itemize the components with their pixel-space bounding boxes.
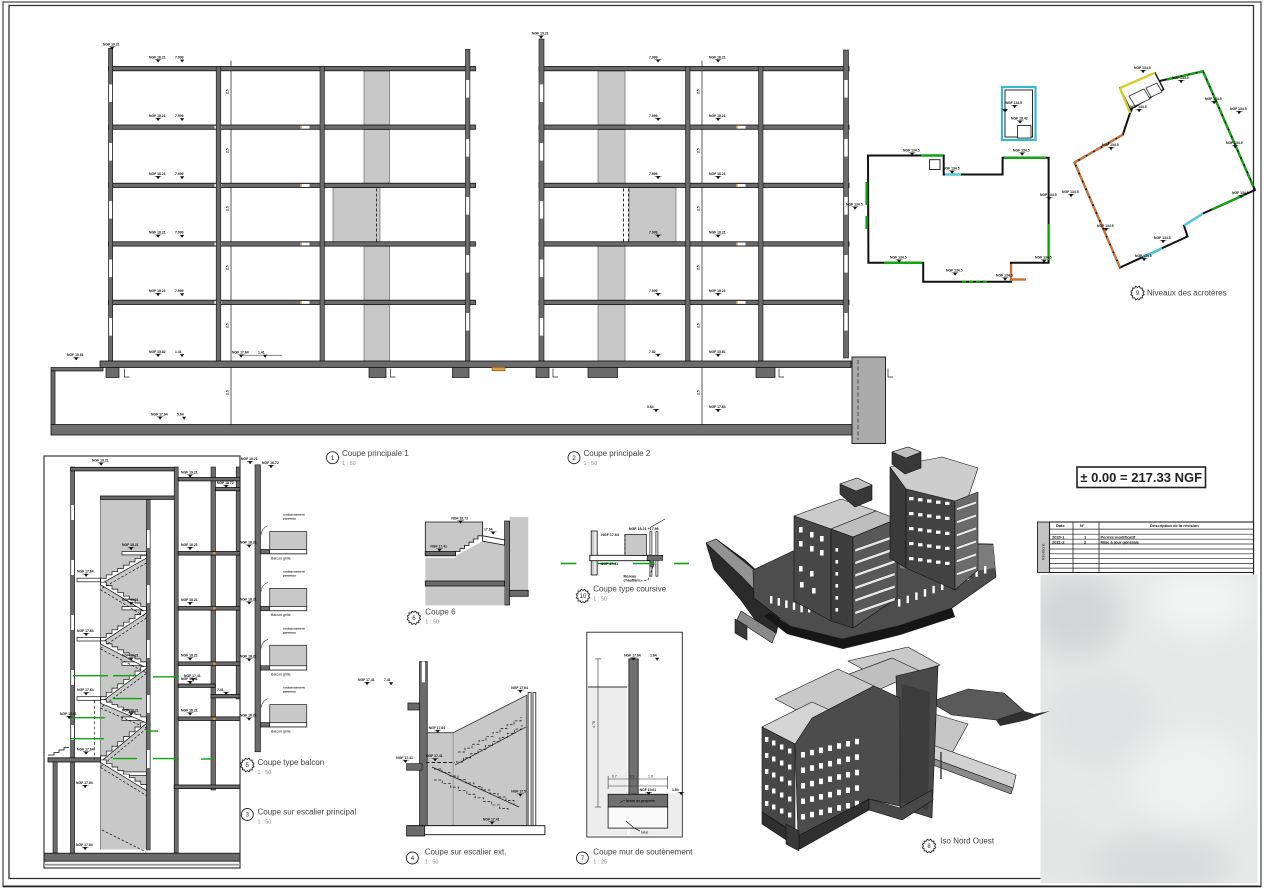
svg-text:NGF 17.64: NGF 17.64 <box>151 413 168 417</box>
svg-text:2.5: 2.5 <box>697 206 701 211</box>
svg-text:NGF 17.41: NGF 17.41 <box>601 562 619 566</box>
svg-text:7.999: 7.999 <box>649 289 658 293</box>
svg-text:NGF 18.21: NGF 18.21 <box>149 231 166 235</box>
svg-text:NGF 15.61: NGF 15.61 <box>709 350 726 354</box>
svg-text:Balcon grille: Balcon grille <box>271 729 291 733</box>
svg-text:2.5: 2.5 <box>697 323 701 328</box>
svg-text:1 : 50: 1 : 50 <box>258 770 272 776</box>
svg-text:7.999: 7.999 <box>649 114 658 118</box>
svg-text:NGF 17.64: NGF 17.64 <box>429 726 446 730</box>
svg-text:10: 10 <box>580 594 587 600</box>
svg-text:NGF 17.64: NGF 17.64 <box>624 654 641 658</box>
svg-text:NGF 19.21: NGF 19.21 <box>532 32 549 36</box>
svg-text:NGF 134.5: NGF 134.5 <box>1006 101 1023 105</box>
svg-text:Coupe sur escalier ext.: Coupe sur escalier ext. <box>425 848 507 857</box>
svg-text:1 : 50: 1 : 50 <box>342 461 356 467</box>
svg-text:NGF 18.21: NGF 18.21 <box>181 708 198 712</box>
svg-text:2.5: 2.5 <box>226 265 230 270</box>
svg-text:7.999: 7.999 <box>175 172 184 176</box>
svg-text:Date: Date <box>1056 523 1065 528</box>
svg-text:Balcon grille: Balcon grille <box>271 613 291 617</box>
svg-text:NGF 17.64: NGF 17.64 <box>76 843 93 847</box>
svg-text:NGF 134.5: NGF 134.5 <box>1102 143 1119 147</box>
svg-text:7.999: 7.999 <box>649 55 658 59</box>
svg-text:NGF 15.61: NGF 15.61 <box>67 353 84 357</box>
svg-text:NGF 17.64: NGF 17.64 <box>77 629 94 633</box>
svg-text:NGF 18.72: NGF 18.72 <box>217 481 234 485</box>
svg-text:NGF 134.5: NGF 134.5 <box>1172 76 1189 80</box>
svg-text:NGF 134.5: NGF 134.5 <box>943 167 960 171</box>
svg-text:NGF 18.21: NGF 18.21 <box>240 714 257 718</box>
svg-text:2.5: 2.5 <box>697 89 701 94</box>
svg-text:panneau: panneau <box>283 630 296 634</box>
svg-text:7.999: 7.999 <box>175 289 184 293</box>
svg-text:panneau: panneau <box>283 690 296 694</box>
svg-text:NGF 134.5: NGF 134.5 <box>1040 193 1057 197</box>
svg-text:NGF 19.21: NGF 19.21 <box>241 457 258 461</box>
svg-text:7.999: 7.999 <box>175 114 184 118</box>
svg-text:NGF 134.5: NGF 134.5 <box>1230 107 1247 111</box>
svg-text:Coupe 6: Coupe 6 <box>425 608 456 617</box>
svg-text:Révisions: Révisions <box>1042 543 1046 560</box>
svg-text:2021-2: 2021-2 <box>1052 539 1065 544</box>
svg-text:1.41: 1.41 <box>258 351 265 355</box>
svg-text:Coupe type coursive: Coupe type coursive <box>593 585 666 594</box>
svg-text:NGF 18.21: NGF 18.21 <box>709 289 726 293</box>
svg-text:NGF 134.5: NGF 134.5 <box>846 203 863 207</box>
svg-text:0.7: 0.7 <box>612 775 617 779</box>
svg-text:Coupe type balcon: Coupe type balcon <box>258 758 325 767</box>
svg-text:NGF 18.21: NGF 18.21 <box>149 114 166 118</box>
svg-text:NGF 134.5: NGF 134.5 <box>1205 97 1222 101</box>
svg-text:Description de la révision: Description de la révision <box>1150 523 1199 528</box>
svg-text:NGF 18.21: NGF 18.21 <box>240 597 257 601</box>
svg-text:NGF 17.64: NGF 17.64 <box>77 570 94 574</box>
svg-text:Niveaux des acrotères: Niveaux des acrotères <box>1147 289 1227 298</box>
svg-text:Coupe principale 2: Coupe principale 2 <box>584 449 651 458</box>
svg-text:NGF 134.5: NGF 134.5 <box>1226 141 1243 145</box>
svg-text:NGF 18.72: NGF 18.72 <box>262 461 279 465</box>
svg-text:1 : 50: 1 : 50 <box>593 597 607 603</box>
svg-text:1 : 50: 1 : 50 <box>584 461 598 467</box>
svg-text:NGF 17.5: NGF 17.5 <box>511 790 526 794</box>
svg-text:NGF 18.21: NGF 18.21 <box>709 114 726 118</box>
svg-text:NGF 18.21: NGF 18.21 <box>181 598 198 602</box>
svg-text:NGF 134.5: NGF 134.5 <box>1062 190 1079 194</box>
svg-text:7.41: 7.41 <box>217 688 224 692</box>
svg-text:NGF 17.64: NGF 17.64 <box>601 533 619 537</box>
svg-text:béton de propreté: béton de propreté <box>626 799 655 803</box>
svg-text:1 : 50: 1 : 50 <box>258 820 272 826</box>
svg-text:NGF 134.5: NGF 134.5 <box>1232 191 1249 195</box>
svg-text:NGF 134.5: NGF 134.5 <box>1035 256 1052 260</box>
svg-text:4.75: 4.75 <box>592 721 596 728</box>
svg-text:NGF 18.21: NGF 18.21 <box>122 598 139 602</box>
svg-text:NGF 18.43: NGF 18.43 <box>1011 117 1028 121</box>
svg-text:N°: N° <box>1080 523 1085 528</box>
svg-text:NGF 17.41: NGF 17.41 <box>184 674 201 678</box>
svg-text:panneau: panneau <box>283 573 296 577</box>
svg-text:7.52: 7.52 <box>649 350 656 354</box>
svg-text:1.0: 1.0 <box>648 775 653 779</box>
svg-text:NGF 19.21: NGF 19.21 <box>92 459 109 463</box>
svg-text:17.64: 17.64 <box>484 528 493 532</box>
svg-text:NGF 17.64: NGF 17.64 <box>76 781 93 785</box>
svg-text:1 : 50: 1 : 50 <box>425 620 439 626</box>
svg-text:NGF 18.21: NGF 18.21 <box>709 172 726 176</box>
svg-text:NGF 134.5: NGF 134.5 <box>1154 236 1171 240</box>
svg-text:Balcon grille: Balcon grille <box>271 556 291 560</box>
svg-text:Iso Nord Ouest: Iso Nord Ouest <box>940 837 995 846</box>
svg-text:0.3: 0.3 <box>630 775 635 779</box>
svg-text:Coupe principale 1: Coupe principale 1 <box>342 449 409 458</box>
svg-text:2.5: 2.5 <box>226 206 230 211</box>
svg-text:7.999: 7.999 <box>175 55 184 59</box>
svg-text:NGF 17.64: NGF 17.64 <box>77 747 94 751</box>
svg-text:NGF 134.5: NGF 134.5 <box>1013 149 1030 153</box>
svg-text:NGF 17.41: NGF 17.41 <box>430 545 447 549</box>
svg-text:2.5: 2.5 <box>226 89 230 94</box>
svg-text:NGF 18.21: NGF 18.21 <box>149 172 166 176</box>
svg-text:5.64: 5.64 <box>647 405 654 409</box>
svg-text:2.5: 2.5 <box>226 390 230 395</box>
svg-text:NGF 134.5: NGF 134.5 <box>996 274 1013 278</box>
svg-text:2.5: 2.5 <box>697 390 701 395</box>
svg-text:NGF 19.21: NGF 19.21 <box>103 43 120 47</box>
svg-text:NGF 17.41: NGF 17.41 <box>358 678 375 682</box>
svg-text:NGF 18.21: NGF 18.21 <box>181 543 198 547</box>
svg-text:NGF 15.82: NGF 15.82 <box>149 350 166 354</box>
svg-text:NGF 134.5: NGF 134.5 <box>890 256 907 260</box>
svg-text:NGF 18.21: NGF 18.21 <box>181 653 198 657</box>
svg-text:NGF 18.21: NGF 18.21 <box>149 55 166 59</box>
svg-text:5.64: 5.64 <box>177 413 184 417</box>
svg-text:NGF 17.41: NGF 17.41 <box>396 756 413 760</box>
svg-text:NGF 134.5: NGF 134.5 <box>1130 105 1147 109</box>
svg-text:1 : 25: 1 : 25 <box>593 860 607 866</box>
svg-text:7.999: 7.999 <box>649 231 658 235</box>
svg-text:NGF 15.61: NGF 15.61 <box>60 712 77 716</box>
svg-text:talus: talus <box>641 831 648 835</box>
svg-text:NGF 134.5: NGF 134.5 <box>1135 254 1152 258</box>
svg-text:7.999: 7.999 <box>649 172 658 176</box>
svg-text:1 : 50: 1 : 50 <box>425 860 439 866</box>
svg-text:NGF 18.21 +17.99: NGF 18.21 +17.99 <box>629 527 659 531</box>
svg-text:NGF 17.64: NGF 17.64 <box>511 686 528 690</box>
svg-text:NGF 18.21: NGF 18.21 <box>240 541 257 545</box>
svg-text:NGF 18.21: NGF 18.21 <box>709 231 726 235</box>
svg-text:NGF 17.64: NGF 17.64 <box>709 405 726 409</box>
svg-text:7.41: 7.41 <box>384 678 391 682</box>
svg-text:NGF 18.21: NGF 18.21 <box>240 654 257 658</box>
svg-text:NGF 18.72: NGF 18.72 <box>451 517 468 521</box>
svg-text:NGF 17.41: NGF 17.41 <box>483 817 500 821</box>
svg-text:NGF 134.5: NGF 134.5 <box>1134 66 1151 70</box>
svg-text:Balcon grille: Balcon grille <box>271 673 291 677</box>
svg-text:NGF 18.21: NGF 18.21 <box>122 543 139 547</box>
svg-text:NGF 134.5: NGF 134.5 <box>946 269 963 273</box>
svg-text:NGF 18.21: NGF 18.21 <box>122 653 139 657</box>
svg-text:2.5: 2.5 <box>226 148 230 153</box>
svg-text:1.64: 1.64 <box>650 654 657 658</box>
svg-text:Coupe sur escalier principal: Coupe sur escalier principal <box>258 808 357 817</box>
svg-text:NGF 15.61: NGF 15.61 <box>640 788 657 792</box>
svg-text:1.41: 1.41 <box>175 350 182 354</box>
svg-text:NGF 17.64: NGF 17.64 <box>232 351 249 355</box>
svg-text:NGF 134.5: NGF 134.5 <box>903 149 920 153</box>
svg-text:2.5: 2.5 <box>697 265 701 270</box>
svg-text:1.94: 1.94 <box>672 788 679 792</box>
svg-text:panneau: panneau <box>283 517 296 521</box>
svg-text:2.5: 2.5 <box>226 323 230 328</box>
svg-text:NGF 17.41: NGF 17.41 <box>426 754 443 758</box>
svg-text:NGF 18.21: NGF 18.21 <box>709 55 726 59</box>
svg-text:Mise à jour générale: Mise à jour générale <box>1101 539 1140 544</box>
svg-text:Coupe mur de soutènement: Coupe mur de soutènement <box>593 848 693 857</box>
svg-text:± 0.00 = 217.33 NGF: ± 0.00 = 217.33 NGF <box>1080 470 1202 485</box>
svg-text:NGF 19.21: NGF 19.21 <box>181 471 198 475</box>
svg-text:NGF 17.64: NGF 17.64 <box>77 688 94 692</box>
svg-text:7.999: 7.999 <box>175 231 184 235</box>
svg-text:NGF 18.21: NGF 18.21 <box>122 708 139 712</box>
svg-text:chauffant: chauffant <box>624 579 641 583</box>
svg-text:NGF 18.21: NGF 18.21 <box>149 289 166 293</box>
svg-text:NGF 134.5: NGF 134.5 <box>1097 224 1114 228</box>
svg-text:2.5: 2.5 <box>697 148 701 153</box>
